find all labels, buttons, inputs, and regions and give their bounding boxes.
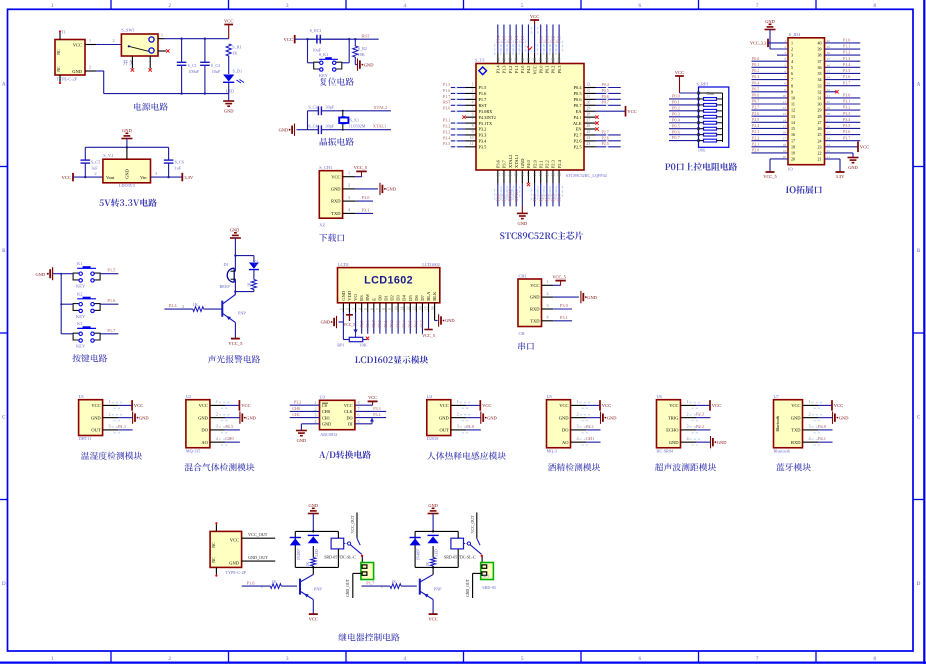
svg-text:12: 12 xyxy=(791,108,795,113)
svg-text:LCD1602: LCD1602 xyxy=(364,275,413,287)
svg-text:P2.3: P2.3 xyxy=(696,412,705,417)
svg-text:40: 40 xyxy=(818,41,822,46)
svg-text:VCC: VCC xyxy=(134,403,143,408)
svg-text:9: 9 xyxy=(388,308,392,310)
svg-text:2: 2 xyxy=(686,411,688,416)
svg-text:VCC: VCC xyxy=(368,395,377,400)
svg-text:P0.3: P0.3 xyxy=(396,320,400,327)
svg-text:GND: GND xyxy=(364,62,374,67)
svg-text:P3.4: P3.4 xyxy=(843,117,850,122)
svg-text:VCC: VCC xyxy=(309,616,318,621)
svg-text:GND: GND xyxy=(520,159,525,168)
svg-text:P2.5: P2.5 xyxy=(360,320,364,327)
svg-text:9: 9 xyxy=(791,89,793,94)
svg-text:GND: GND xyxy=(122,128,132,133)
svg-text:AO: AO xyxy=(201,440,208,445)
svg-text:3: 3 xyxy=(784,51,786,55)
svg-text:1K: 1K xyxy=(391,579,396,584)
svg-text:22: 22 xyxy=(818,150,822,155)
svg-text:P0.4: P0.4 xyxy=(672,117,681,122)
svg-text:18: 18 xyxy=(791,144,795,149)
svg-text:1K: 1K xyxy=(248,282,252,287)
svg-text:P1.2: P1.2 xyxy=(508,66,513,74)
svg-text:GND: GND xyxy=(487,415,497,420)
svg-text:33: 33 xyxy=(827,82,831,86)
svg-text:P0.5: P0.5 xyxy=(408,320,412,327)
svg-text:GND: GND xyxy=(322,422,331,427)
svg-text:VCC: VCC xyxy=(860,144,869,149)
svg-text:P0.5: P0.5 xyxy=(672,123,680,128)
svg-text:P0.1: P0.1 xyxy=(672,100,680,105)
svg-text:15: 15 xyxy=(515,172,519,176)
svg-text:P1.5: P1.5 xyxy=(225,424,234,429)
svg-text:P3.4: P3.4 xyxy=(443,135,450,140)
svg-text:10: 10 xyxy=(783,94,787,98)
svg-text:11: 11 xyxy=(400,306,404,310)
svg-text:12: 12 xyxy=(406,306,410,310)
svg-text:P3.0: P3.0 xyxy=(443,106,450,111)
svg-text:P0.1: P0.1 xyxy=(752,62,759,67)
svg-text:9: 9 xyxy=(472,130,474,134)
svg-text:VCC_3.3: VCC_3.3 xyxy=(750,41,766,46)
svg-text:VCC_5: VCC_5 xyxy=(228,341,243,346)
svg-text:P1.0: P1.0 xyxy=(520,66,525,74)
svg-text:ADC0832: ADC0832 xyxy=(320,432,337,437)
svg-text:4: 4 xyxy=(358,308,362,310)
svg-text:S_RP1: S_RP1 xyxy=(696,82,708,87)
svg-text:D3: D3 xyxy=(396,294,401,300)
svg-text:P2.6: P2.6 xyxy=(366,320,370,327)
svg-text:VCC: VCC xyxy=(91,403,100,408)
svg-text:34: 34 xyxy=(827,76,831,80)
svg-text:3: 3 xyxy=(686,424,688,429)
svg-text:7: 7 xyxy=(358,406,360,411)
svg-text:P2.3: P2.3 xyxy=(551,194,556,201)
svg-text:D5: D5 xyxy=(408,294,413,300)
svg-text:P0.5: P0.5 xyxy=(752,86,759,91)
svg-text:NC: NC xyxy=(57,66,61,72)
svg-text:SRD-05VDC-SL-C: SRD-05VDC-SL-C xyxy=(324,555,356,560)
svg-text:LED: LED xyxy=(315,549,319,557)
svg-text:12: 12 xyxy=(783,106,787,110)
svg-text:25: 25 xyxy=(587,130,591,134)
svg-text:P1.0: P1.0 xyxy=(520,36,525,43)
svg-text:K2: K2 xyxy=(77,291,82,296)
svg-text:8: 8 xyxy=(472,124,474,128)
svg-text:33: 33 xyxy=(587,83,591,87)
svg-text:VCC_OUT: VCC_OUT xyxy=(471,515,475,533)
svg-text:OUT: OUT xyxy=(440,428,449,433)
svg-text:18: 18 xyxy=(783,143,787,147)
svg-text:E: E xyxy=(371,298,376,301)
svg-text:23: 23 xyxy=(587,142,591,146)
svg-text:2: 2 xyxy=(94,171,96,176)
svg-text:GND: GND xyxy=(91,415,101,420)
svg-text:P4.3INT2: P4.3INT2 xyxy=(479,115,496,120)
svg-text:P0.7: P0.7 xyxy=(602,100,609,105)
svg-text:15: 15 xyxy=(791,126,795,131)
svg-text:32: 32 xyxy=(818,89,822,94)
svg-text:38: 38 xyxy=(533,58,537,62)
svg-text:DI: DI xyxy=(348,422,353,427)
svg-text:10K: 10K xyxy=(358,52,365,57)
svg-text:P3.0: P3.0 xyxy=(818,424,827,429)
svg-text:16: 16 xyxy=(431,306,435,310)
svg-text:30pF: 30pF xyxy=(326,105,335,110)
svg-text:LED: LED xyxy=(226,89,234,94)
svg-text:P0.3: P0.3 xyxy=(557,36,562,43)
svg-text:P1.4: P1.4 xyxy=(495,36,500,43)
svg-text:31: 31 xyxy=(818,95,822,100)
svg-text:P0.0: P0.0 xyxy=(538,66,543,74)
svg-text:19: 19 xyxy=(791,150,795,155)
svg-text:CH: CH xyxy=(519,331,526,336)
svg-text:15: 15 xyxy=(425,306,429,310)
svg-text:KEY: KEY xyxy=(76,314,86,319)
svg-text:1: 1 xyxy=(348,171,350,176)
svg-text:VO: VO xyxy=(353,293,358,300)
svg-text:P2.5: P2.5 xyxy=(602,141,609,146)
svg-text:6: 6 xyxy=(784,69,786,73)
svg-text:P3.7: P3.7 xyxy=(502,159,507,168)
svg-text:CLK: CLK xyxy=(344,409,352,414)
svg-text:P2.1: P2.1 xyxy=(752,141,759,146)
svg-text:5: 5 xyxy=(784,63,786,67)
svg-text:XTAL2: XTAL2 xyxy=(508,155,513,168)
svg-text:17: 17 xyxy=(783,137,787,141)
svg-text:1K: 1K xyxy=(426,562,430,567)
svg-text:38: 38 xyxy=(818,53,822,58)
svg-text:P1.6: P1.6 xyxy=(107,298,116,303)
svg-text:S_U1: S_U1 xyxy=(475,57,485,62)
svg-text:P3.6: P3.6 xyxy=(496,159,501,168)
svg-text:2: 2 xyxy=(808,411,810,416)
svg-text:GND: GND xyxy=(331,187,341,192)
svg-text:38: 38 xyxy=(827,51,831,55)
svg-text:16: 16 xyxy=(783,131,787,135)
svg-text:P2.2: P2.2 xyxy=(696,424,704,429)
svg-text:P2.5: P2.5 xyxy=(574,145,582,150)
svg-text:GND: GND xyxy=(717,440,727,445)
svg-text:KEY: KEY xyxy=(76,284,86,289)
svg-text:1: 1 xyxy=(315,400,317,405)
svg-text:P2.7: P2.7 xyxy=(372,320,376,327)
svg-text:P0.3: P0.3 xyxy=(557,66,562,74)
svg-text:U7: U7 xyxy=(774,394,780,399)
svg-text:DO: DO xyxy=(562,428,569,433)
svg-text:P2.0: P2.0 xyxy=(752,147,759,152)
svg-text:P3.4: P3.4 xyxy=(479,139,488,144)
svg-text:3: 3 xyxy=(791,53,793,58)
svg-text:D1: D1 xyxy=(224,262,229,267)
svg-text:10uF: 10uF xyxy=(212,69,221,74)
svg-text:36: 36 xyxy=(818,65,822,70)
svg-text:GND_OUT: GND_OUT xyxy=(248,555,268,560)
svg-text:GND: GND xyxy=(297,438,307,443)
svg-text:30: 30 xyxy=(818,102,822,107)
svg-text:NC: NC xyxy=(212,542,216,548)
svg-text:3: 3 xyxy=(576,424,578,429)
svg-text:P0.2: P0.2 xyxy=(672,105,680,110)
svg-text:P4.1: P4.1 xyxy=(574,115,582,120)
svg-text:1uF: 1uF xyxy=(175,166,182,171)
svg-text:17: 17 xyxy=(527,172,531,176)
svg-text:P1.2: P1.2 xyxy=(843,50,850,55)
svg-text:11: 11 xyxy=(470,142,474,146)
svg-text:P0.6: P0.6 xyxy=(602,94,609,99)
svg-text:KEY: KEY xyxy=(319,73,329,78)
svg-text:S_C2: S_C2 xyxy=(211,63,220,68)
svg-text:VCC: VCC xyxy=(230,538,239,543)
svg-text:23: 23 xyxy=(818,144,822,149)
svg-text:XTAL1: XTAL1 xyxy=(514,189,519,201)
svg-text:20: 20 xyxy=(783,155,787,159)
svg-text:42: 42 xyxy=(509,58,513,62)
svg-text:VCC: VCC xyxy=(627,109,636,114)
svg-text:1: 1 xyxy=(808,399,810,404)
svg-text:P0.2: P0.2 xyxy=(551,36,556,43)
svg-text:5: 5 xyxy=(791,65,793,70)
svg-text:P3.1: P3.1 xyxy=(818,436,826,441)
svg-text:P2.4: P2.4 xyxy=(557,194,562,201)
svg-text:4: 4 xyxy=(791,59,793,64)
svg-text:34: 34 xyxy=(558,58,562,62)
svg-text:13: 13 xyxy=(413,306,417,310)
svg-text:1: 1 xyxy=(686,399,688,404)
svg-text:10K: 10K xyxy=(360,343,367,348)
svg-text:P0.3: P0.3 xyxy=(752,74,759,79)
svg-text:1K: 1K xyxy=(193,302,198,307)
svg-text:P3.5: P3.5 xyxy=(479,145,487,150)
svg-text:GND: GND xyxy=(72,69,82,74)
svg-text:3: 3 xyxy=(348,195,350,200)
svg-text:P2.0: P2.0 xyxy=(532,160,537,168)
svg-text:10: 10 xyxy=(470,136,474,140)
svg-text:S_K1: S_K1 xyxy=(319,52,329,57)
svg-text:P2.5: P2.5 xyxy=(752,117,759,122)
svg-text:P3.1: P3.1 xyxy=(443,117,450,122)
svg-text:P1.6: P1.6 xyxy=(479,91,488,96)
svg-text:P3.3: P3.3 xyxy=(373,406,380,411)
svg-text:36: 36 xyxy=(827,63,831,67)
svg-text:1K: 1K xyxy=(271,579,276,584)
svg-text:28: 28 xyxy=(827,112,831,116)
svg-text:AO: AO xyxy=(562,440,569,445)
svg-text:P3.0RX: P3.0RX xyxy=(479,109,494,114)
svg-text:32: 32 xyxy=(827,88,831,92)
svg-text:2: 2 xyxy=(112,38,114,43)
svg-text:2: 2 xyxy=(348,183,350,188)
svg-text:P1.5: P1.5 xyxy=(843,68,850,73)
svg-text:VCC: VCC xyxy=(834,403,843,408)
svg-text:12: 12 xyxy=(496,172,500,176)
svg-text:D7: D7 xyxy=(420,294,425,300)
svg-text:14: 14 xyxy=(509,172,513,176)
svg-text:P1.3: P1.3 xyxy=(502,66,507,74)
svg-text:GND: GND xyxy=(530,295,540,300)
svg-text:100uF: 100uF xyxy=(188,69,199,74)
svg-text:PNP: PNP xyxy=(314,587,322,592)
svg-text:GND: GND xyxy=(428,503,438,508)
svg-text:P0.4: P0.4 xyxy=(752,80,759,85)
svg-text:EN: EN xyxy=(576,127,583,132)
svg-text:P2.0: P2.0 xyxy=(532,194,537,201)
svg-text:VCC: VCC xyxy=(62,175,71,180)
svg-text:31: 31 xyxy=(827,94,831,98)
svg-text:P0.1: P0.1 xyxy=(384,320,388,327)
svg-text:P2.1: P2.1 xyxy=(586,424,594,429)
svg-text:MQ-3: MQ-3 xyxy=(547,448,557,453)
svg-text:6: 6 xyxy=(370,308,374,310)
svg-text:RXD: RXD xyxy=(331,199,341,204)
svg-text:VCC: VCC xyxy=(331,174,340,179)
svg-text:28: 28 xyxy=(818,114,822,119)
svg-text:P1.7: P1.7 xyxy=(443,94,450,99)
svg-text:P1.5: P1.5 xyxy=(479,85,487,90)
svg-text:K3: K3 xyxy=(77,321,83,326)
svg-text:P3.6: P3.6 xyxy=(843,129,850,134)
svg-text:P1.6: P1.6 xyxy=(247,580,256,585)
svg-text:GND: GND xyxy=(386,187,396,192)
svg-text:P3.5: P3.5 xyxy=(443,141,450,146)
svg-text:VCC: VCC xyxy=(602,403,611,408)
svg-text:BLA: BLA xyxy=(426,291,431,301)
svg-text:35: 35 xyxy=(827,69,831,73)
svg-text:GND_OUT: GND_OUT xyxy=(346,578,350,597)
svg-text:2: 2 xyxy=(109,411,111,416)
svg-text:GND: GND xyxy=(341,290,346,301)
svg-text:KEY: KEY xyxy=(76,344,86,349)
svg-text:P2.6: P2.6 xyxy=(752,111,759,116)
svg-text:P0.1: P0.1 xyxy=(545,66,550,74)
svg-text:3: 3 xyxy=(352,308,356,310)
svg-text:P3.1: P3.1 xyxy=(843,99,850,104)
svg-text:S_C3: S_C3 xyxy=(308,105,317,110)
svg-text:3: 3 xyxy=(457,424,459,429)
svg-text:19: 19 xyxy=(539,172,543,176)
svg-text:TXD: TXD xyxy=(530,318,540,323)
svg-text:CH1: CH1 xyxy=(519,273,527,278)
svg-text:4: 4 xyxy=(784,57,786,61)
svg-text:GND: GND xyxy=(125,169,130,179)
svg-text:15: 15 xyxy=(783,124,787,128)
svg-text:VCC: VCC xyxy=(791,403,800,408)
svg-text:P1.3: P1.3 xyxy=(843,56,850,61)
svg-text:23: 23 xyxy=(827,143,831,147)
svg-text:GND: GND xyxy=(309,503,319,508)
svg-text:RST: RST xyxy=(443,100,451,105)
svg-text:P0.3: P0.3 xyxy=(672,111,680,116)
svg-text:RP1: RP1 xyxy=(337,343,344,348)
svg-text:43: 43 xyxy=(502,58,506,62)
svg-text:D4: D4 xyxy=(402,294,407,300)
svg-text:P1.7: P1.7 xyxy=(107,328,116,333)
svg-text:S_C1: S_C1 xyxy=(188,63,197,68)
svg-text:39: 39 xyxy=(827,45,831,49)
svg-text:P1.5: P1.5 xyxy=(443,82,450,87)
svg-text:41: 41 xyxy=(515,58,519,62)
svg-text:1: 1 xyxy=(89,38,91,43)
svg-text:GND: GND xyxy=(587,295,597,300)
svg-text:P3.3: P3.3 xyxy=(443,129,450,134)
svg-text:S_JD4: S_JD4 xyxy=(789,32,802,37)
svg-text:7: 7 xyxy=(376,308,380,310)
svg-text:31: 31 xyxy=(587,95,591,99)
svg-text:CH0: CH0 xyxy=(292,406,300,411)
svg-text:P1.1: P1.1 xyxy=(118,424,126,429)
svg-text:P0.6: P0.6 xyxy=(672,129,681,134)
svg-text:P0.2: P0.2 xyxy=(752,68,759,73)
svg-text:39: 39 xyxy=(818,47,822,52)
svg-text:20: 20 xyxy=(791,157,795,162)
svg-text:S_EC1: S_EC1 xyxy=(310,28,322,33)
svg-text:3: 3 xyxy=(381,584,383,589)
svg-text:S_R2: S_R2 xyxy=(358,46,367,51)
svg-text:1: 1 xyxy=(791,41,793,46)
svg-text:JK1: JK1 xyxy=(482,574,489,579)
svg-text:VCC: VCC xyxy=(73,42,82,47)
svg-text:1K: 1K xyxy=(232,51,237,56)
svg-text:2: 2 xyxy=(89,65,91,70)
svg-text:Bluetooth: Bluetooth xyxy=(775,416,780,432)
svg-text:GND: GND xyxy=(35,272,45,277)
svg-text:VCC: VCC xyxy=(530,283,539,288)
svg-text:1: 1 xyxy=(340,308,344,310)
svg-text:CS: CS xyxy=(322,403,328,408)
svg-text:P3.2: P3.2 xyxy=(443,123,450,128)
svg-text:P4.2: P4.2 xyxy=(526,66,531,74)
svg-text:DHT11: DHT11 xyxy=(79,436,92,441)
svg-text:BLK: BLK xyxy=(432,291,437,301)
svg-text:P2.1: P2.1 xyxy=(538,194,543,201)
svg-text:NC: NC xyxy=(212,557,216,563)
svg-text:P1.7: P1.7 xyxy=(843,80,850,85)
svg-text:U2: U2 xyxy=(186,394,191,399)
svg-text:13: 13 xyxy=(783,112,787,116)
svg-text:P0.7: P0.7 xyxy=(421,320,425,327)
svg-text:P3.2: P3.2 xyxy=(294,400,301,405)
svg-text:VCC: VCC xyxy=(224,18,233,23)
svg-text:GND_OUT: GND_OUT xyxy=(466,578,470,597)
svg-text:5: 5 xyxy=(364,308,368,310)
svg-text:U3: U3 xyxy=(320,395,326,400)
svg-text:2: 2 xyxy=(546,291,548,296)
svg-text:VCC_5: VCC_5 xyxy=(552,274,566,279)
svg-text:14: 14 xyxy=(783,118,787,122)
svg-text:27: 27 xyxy=(587,118,591,122)
svg-text:LDO3V3: LDO3V3 xyxy=(119,183,135,188)
svg-text:P0.6: P0.6 xyxy=(574,97,583,102)
svg-text:A: A xyxy=(917,82,921,87)
svg-text:10: 10 xyxy=(791,95,795,100)
svg-text:3: 3 xyxy=(155,171,157,176)
svg-text:S_CH1: S_CH1 xyxy=(319,165,332,170)
svg-text:NC: NC xyxy=(57,49,61,55)
svg-text:8: 8 xyxy=(784,82,786,86)
svg-text:4: 4 xyxy=(472,100,474,104)
svg-text:19: 19 xyxy=(783,149,787,153)
svg-text:40: 40 xyxy=(521,58,525,62)
svg-text:P2.7: P2.7 xyxy=(752,105,759,110)
svg-text:P1.0: P1.0 xyxy=(843,38,850,43)
svg-text:Bluetooth: Bluetooth xyxy=(774,448,791,453)
svg-text:P2.6: P2.6 xyxy=(602,135,609,140)
svg-text:24: 24 xyxy=(587,136,591,140)
svg-text:GND: GND xyxy=(765,19,775,24)
svg-text:16: 16 xyxy=(521,172,525,176)
svg-text:P0.4: P0.4 xyxy=(402,320,406,327)
svg-text:GND: GND xyxy=(559,415,569,420)
